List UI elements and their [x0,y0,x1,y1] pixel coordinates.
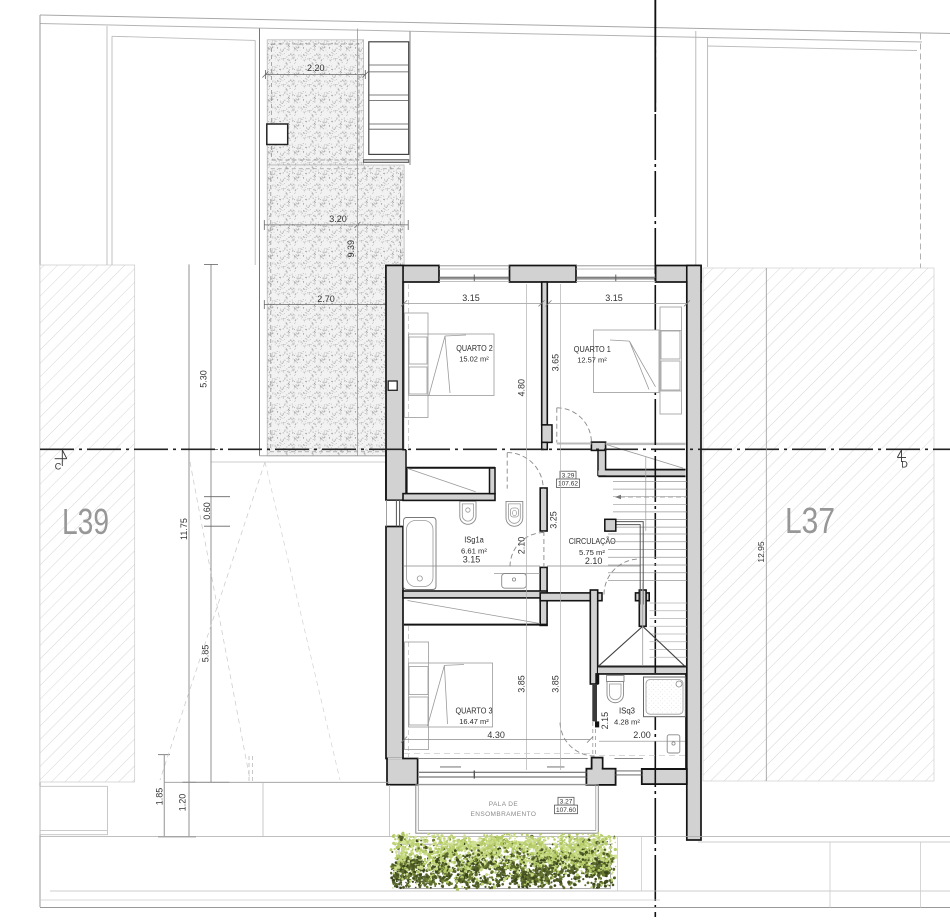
svg-text:4.30: 4.30 [487,730,505,740]
svg-text:3.25: 3.25 [549,511,559,529]
svg-text:3.85: 3.85 [517,675,527,693]
svg-text:0.60: 0.60 [202,502,212,520]
svg-text:QUARTO 2: QUARTO 2 [456,344,493,353]
svg-text:4.80: 4.80 [517,379,527,397]
svg-text:107.60: 107.60 [556,807,576,814]
svg-text:9.39: 9.39 [346,240,356,258]
svg-text:15.02 m²: 15.02 m² [459,355,489,364]
svg-text:4.28 m²: 4.28 m² [614,718,641,727]
svg-text:ISq3: ISq3 [619,707,636,716]
svg-text:16.47 m²: 16.47 m² [459,717,489,726]
svg-text:12.95: 12.95 [756,541,766,563]
svg-text:12.57 m²: 12.57 m² [577,356,607,365]
svg-text:107.62: 107.62 [558,481,578,488]
svg-text:L37: L37 [785,500,835,541]
svg-text:3.15: 3.15 [605,293,623,303]
svg-text:ISg1a: ISg1a [464,536,484,545]
svg-text:3.20: 3.20 [329,214,347,224]
svg-text:2.70: 2.70 [317,294,335,304]
svg-text:2.20: 2.20 [307,63,325,73]
svg-text:2.10: 2.10 [585,556,603,566]
svg-text:CIRCULAÇÃO: CIRCULAÇÃO [569,536,616,546]
svg-text:ENSOMBRAMENTO: ENSOMBRAMENTO [471,811,537,818]
svg-text:3.15: 3.15 [462,293,480,303]
svg-text:PALA DE: PALA DE [489,801,519,808]
svg-text:QUARTO 1: QUARTO 1 [574,345,611,354]
svg-text:2.00: 2.00 [633,730,651,740]
svg-text:11.75: 11.75 [179,518,189,540]
svg-text:3.29: 3.29 [562,472,575,479]
svg-text:C: C [55,462,62,472]
svg-text:5.30: 5.30 [199,370,209,388]
svg-text:L39: L39 [62,501,109,542]
svg-text:QUARTO 3: QUARTO 3 [456,707,493,716]
svg-text:3.65: 3.65 [551,354,561,372]
svg-text:D: D [901,460,908,470]
svg-text:3.85: 3.85 [551,675,561,693]
svg-text:2.10: 2.10 [517,537,527,555]
svg-text:3.15: 3.15 [463,555,481,565]
svg-text:2.15: 2.15 [600,712,610,730]
svg-text:1.20: 1.20 [178,794,188,812]
svg-text:3.27: 3.27 [560,799,573,806]
svg-text:1.85: 1.85 [155,788,165,806]
